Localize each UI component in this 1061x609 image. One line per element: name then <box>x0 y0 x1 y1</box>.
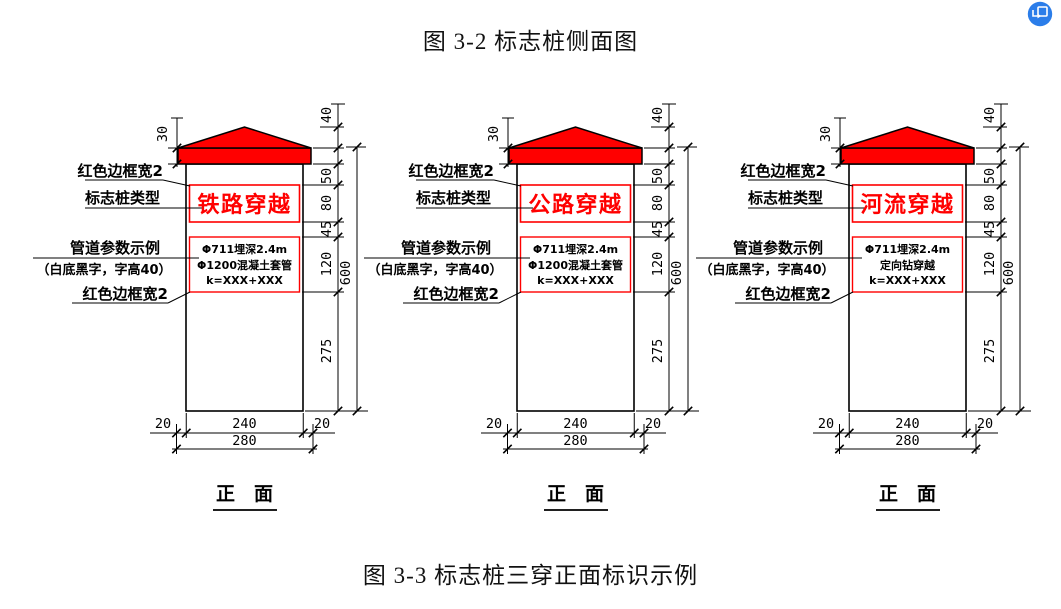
dim-mid_gap: 45 <box>650 221 666 237</box>
dim-lower: 275 <box>319 339 335 363</box>
param-line-1: Φ711埋深2.4m <box>202 242 287 256</box>
red-band <box>841 148 974 164</box>
param-line-3: k=XXX+XXX <box>869 274 946 287</box>
label-param-note: （白底黑字，字高40） <box>699 262 834 278</box>
front-view-label: 正 面 <box>879 483 936 505</box>
post-type-text: 河流穿越 <box>860 192 954 218</box>
dim-margin-right: 20 <box>645 416 661 432</box>
label-post-type: 标志桩类型 <box>747 189 823 207</box>
label-red-border-bottom: 红色边框宽2 <box>414 285 499 303</box>
param-line-2: Φ1200混凝土套管 <box>197 258 292 272</box>
label-red-border-bottom: 红色边框宽2 <box>746 285 831 303</box>
dim-type_box: 80 <box>319 195 335 211</box>
label-param-title: 管道参数示例 <box>733 239 823 257</box>
dim-margin-left: 20 <box>155 416 171 432</box>
label-red-border-top: 红色边框宽2 <box>741 162 826 180</box>
param-line-1: Φ711埋深2.4m <box>865 242 950 256</box>
dim-cap: 40 <box>319 107 335 123</box>
dim-inner-width: 240 <box>232 416 256 432</box>
label-param-title: 管道参数示例 <box>70 239 160 257</box>
marker-post-diagram-2: 红色边框宽2标志桩类型管道参数示例（白底黑字，字高40）红色边框宽2公路穿越Φ7… <box>364 104 699 510</box>
param-line-2: 定向钻穿越 <box>880 258 936 272</box>
param-line-1: Φ711埋深2.4m <box>533 242 618 256</box>
dim-inner-width: 240 <box>895 416 919 432</box>
red-cap-triangle <box>509 127 642 148</box>
dim-total-height: 600 <box>669 261 685 285</box>
param-line-3: k=XXX+XXX <box>537 274 614 287</box>
red-band <box>509 148 642 164</box>
figure-3-3-title: 图 3-3 标志桩三穿正面标识示例 <box>0 556 1061 590</box>
marker-post-diagram-1: 红色边框宽2标志桩类型管道参数示例（白底黑字，字高40）红色边框宽2铁路穿越Φ7… <box>33 104 368 510</box>
marker-post-diagram-3: 红色边框宽2标志桩类型管道参数示例（白底黑字，字高40）红色边框宽2河流穿越Φ7… <box>696 104 1031 510</box>
marker-post-technical-drawing: 红色边框宽2标志桩类型管道参数示例（白底黑字，字高40）红色边框宽2铁路穿越Φ7… <box>0 0 1061 609</box>
dim-outer-width: 280 <box>895 433 919 449</box>
label-param-note: （白底黑字，字高40） <box>367 262 502 278</box>
dim-seg_top_gap: 50 <box>650 168 666 184</box>
label-red-border-top: 红色边框宽2 <box>409 162 494 180</box>
dim-cap: 40 <box>982 107 998 123</box>
dim-type_box: 80 <box>982 195 998 211</box>
dim-param_box: 120 <box>982 252 998 276</box>
label-post-type: 标志桩类型 <box>84 189 160 207</box>
red-cap-triangle <box>178 127 311 148</box>
dim-margin-right: 20 <box>977 416 993 432</box>
front-view-label: 正 面 <box>216 483 273 505</box>
dim-margin-right: 20 <box>314 416 330 432</box>
post-type-text: 铁路穿越 <box>197 192 291 218</box>
dim-mid_gap: 45 <box>982 221 998 237</box>
dim-band-30: 30 <box>155 126 171 142</box>
dim-lower: 275 <box>650 339 666 363</box>
label-param-note: （白底黑字，字高40） <box>36 262 171 278</box>
front-view-label: 正 面 <box>547 483 604 505</box>
red-cap-triangle <box>841 127 974 148</box>
dim-lower: 275 <box>982 339 998 363</box>
save-image-icon[interactable] <box>1027 1 1053 27</box>
dim-total-height: 600 <box>338 261 354 285</box>
label-param-title: 管道参数示例 <box>401 239 491 257</box>
dim-param_box: 120 <box>650 252 666 276</box>
dim-band-30: 30 <box>818 126 834 142</box>
red-band <box>178 148 311 164</box>
dim-band-30: 30 <box>486 126 502 142</box>
dim-mid_gap: 45 <box>319 221 335 237</box>
dim-cap: 40 <box>650 107 666 123</box>
param-line-3: k=XXX+XXX <box>206 274 283 287</box>
dim-param_box: 120 <box>319 252 335 276</box>
dim-margin-left: 20 <box>486 416 502 432</box>
dim-outer-width: 280 <box>563 433 587 449</box>
dim-type_box: 80 <box>650 195 666 211</box>
dim-inner-width: 240 <box>563 416 587 432</box>
label-post-type: 标志桩类型 <box>415 189 491 207</box>
label-red-border-top: 红色边框宽2 <box>78 162 163 180</box>
dim-total-height: 600 <box>1001 261 1017 285</box>
param-line-2: Φ1200混凝土套管 <box>528 258 623 272</box>
dim-seg_top_gap: 50 <box>319 168 335 184</box>
dim-seg_top_gap: 50 <box>982 168 998 184</box>
post-type-text: 公路穿越 <box>528 192 622 218</box>
save-image-icon-glyph <box>1027 1 1053 27</box>
dim-margin-left: 20 <box>818 416 834 432</box>
dim-outer-width: 280 <box>232 433 256 449</box>
label-red-border-bottom: 红色边框宽2 <box>83 285 168 303</box>
